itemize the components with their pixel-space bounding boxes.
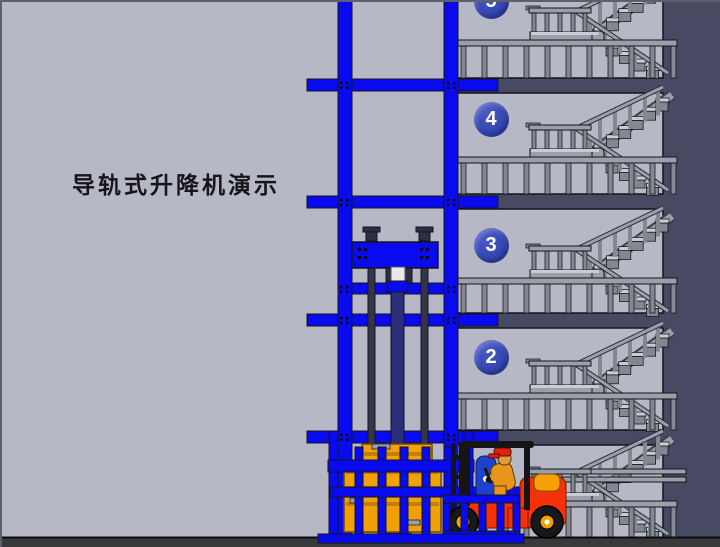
floor-badge: 4 [474,102,509,137]
floor-badge: 2 [474,340,509,375]
animation-stage: 导轨式升降机演示 5432 [0,0,720,547]
scene-canvas [0,0,720,547]
page-title: 导轨式升降机演示 [72,166,280,200]
floor-badge: 3 [474,228,509,263]
